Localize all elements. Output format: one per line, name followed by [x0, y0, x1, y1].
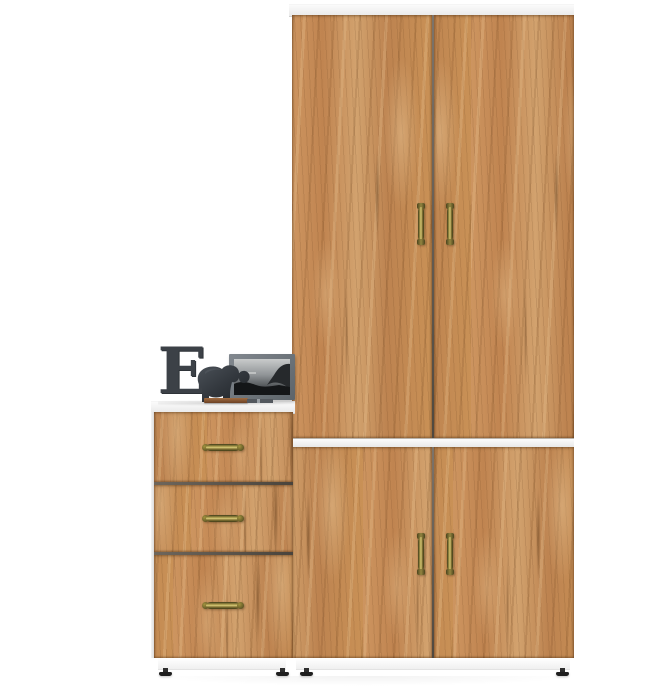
- drawer-handle-2: [202, 514, 244, 523]
- drawer-unit-left-foot: [159, 668, 172, 676]
- elephant-figurine-icon: [193, 357, 250, 402]
- drawer-handle-3: [202, 601, 244, 610]
- wardrobe-left-door-handle: [417, 203, 425, 245]
- cabinet-left-door: [292, 447, 432, 658]
- wardrobe-upper: [292, 15, 574, 438]
- wooden-tray: [204, 398, 248, 403]
- wardrobe-right-door: [434, 15, 574, 438]
- ground-shadow: [150, 676, 580, 686]
- drawer-unit: [154, 412, 293, 658]
- cabinet-left-foot: [300, 668, 313, 676]
- cabinet-left-door-handle: [417, 533, 425, 575]
- wardrobe-right-door-handle: [446, 203, 454, 245]
- cabinet-right-door-handle: [446, 533, 454, 575]
- cabinet-plinth: [296, 658, 570, 670]
- cabinet-right-door: [434, 447, 574, 658]
- frame-stand: [247, 399, 273, 403]
- cabinet-right-foot: [556, 668, 569, 676]
- drawer-unit-plinth: [158, 658, 286, 670]
- cabinet-lower: [292, 447, 574, 658]
- drawer-unit-right-foot: [276, 668, 289, 676]
- product-image: E: [0, 0, 666, 700]
- drawer-handle-1: [202, 443, 244, 452]
- wardrobe-left-door: [292, 15, 432, 438]
